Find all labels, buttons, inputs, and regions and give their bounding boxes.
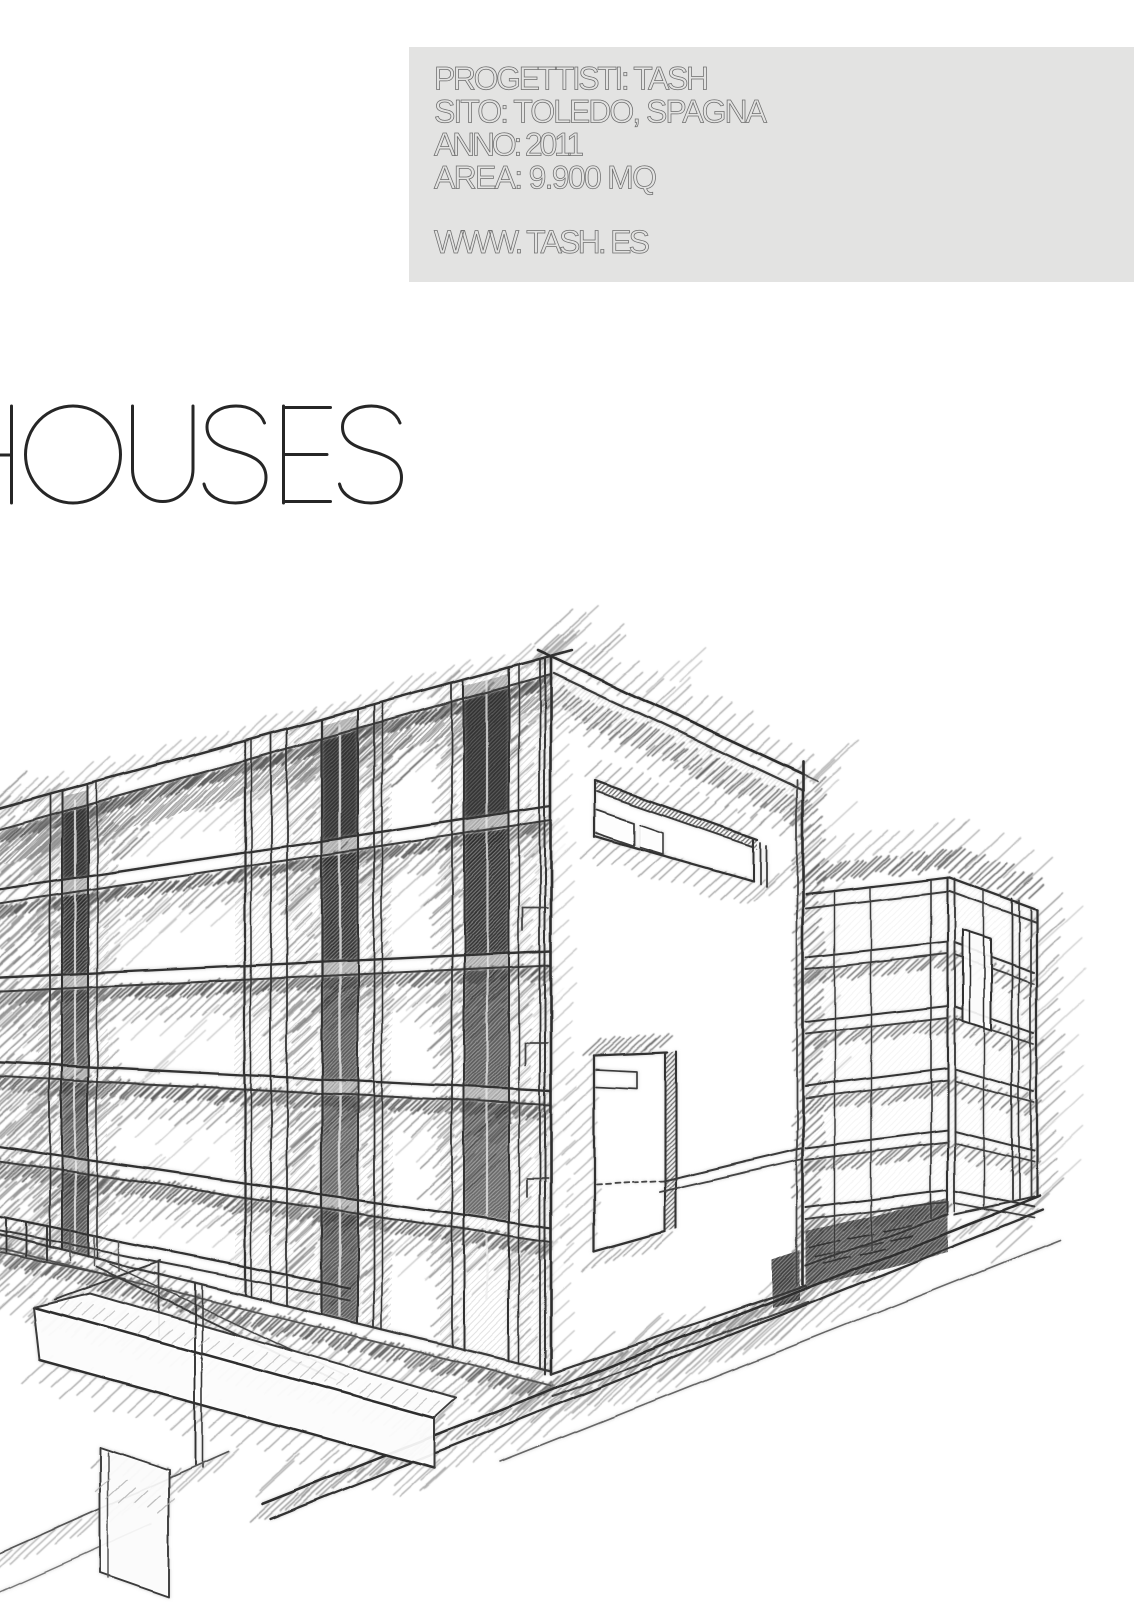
svg-text:ANNO: 2011: ANNO: 2011: [434, 127, 584, 163]
svg-text:WWW. TASH. ES: WWW. TASH. ES: [434, 224, 650, 260]
svg-text:SITO: TOLEDO, SPAGNA: SITO: TOLEDO, SPAGNA: [434, 94, 768, 130]
svg-text:PROGETTISTI: TASH: PROGETTISTI: TASH: [434, 61, 709, 97]
svg-text:AREA: 9.900 MQ: AREA: 9.900 MQ: [434, 160, 657, 196]
